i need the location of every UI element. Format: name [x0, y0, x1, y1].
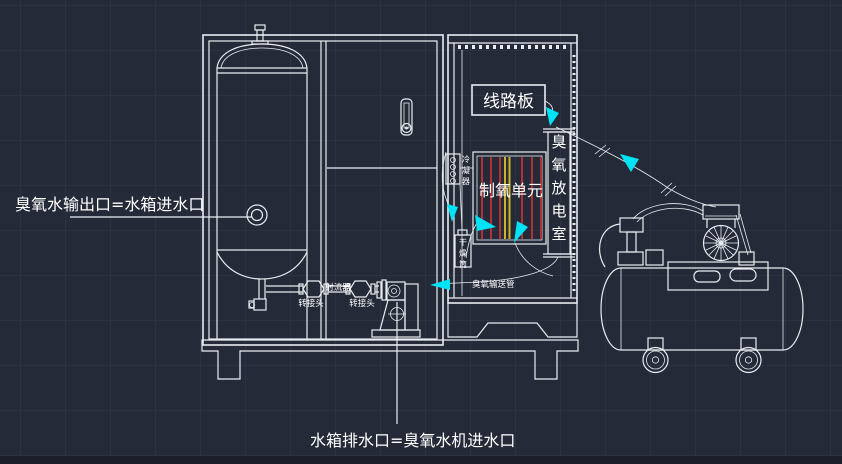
bottom-drain-label: 水箱排水口=臭氧水机进水口	[310, 431, 515, 450]
ozone-discharge-chamber: 臭 氧 放 电 室	[543, 129, 575, 257]
generator-bottom-skirt	[448, 303, 577, 337]
condenser-label: 冷凝器	[462, 154, 471, 188]
tank-inlet-port	[247, 205, 267, 225]
compressor-wheels	[643, 338, 761, 373]
water-pump[interactable]	[372, 280, 420, 337]
drying-cylinder: 干燥筒	[455, 230, 471, 271]
flow-arrow	[620, 154, 639, 172]
door-handle	[401, 99, 412, 135]
fan-spokes	[704, 226, 738, 260]
canvas-bottom-edge	[0, 456, 842, 464]
air-hose	[637, 208, 703, 222]
chamber-char: 室	[551, 225, 566, 243]
pump-housing	[387, 282, 405, 300]
air-supply-line[interactable]	[556, 127, 716, 207]
left-outlet-label: 臭氧水输出口=水箱进水口	[15, 195, 204, 214]
ozone-tube-label: 臭氧输送管	[472, 279, 515, 290]
water-tank-cabinet[interactable]	[203, 25, 443, 345]
tank-drain-pipe	[249, 279, 266, 310]
circuit-board-label: 线路板	[483, 92, 534, 112]
compressor-tank	[601, 268, 803, 350]
cad-model-canvas[interactable]: 射流器 转接头 转接头 线路板	[0, 0, 842, 464]
platform-slot	[730, 269, 756, 281]
chamber-char: 电	[551, 202, 566, 220]
chamber-char: 放	[551, 179, 566, 197]
chamber-char: 氧	[551, 156, 566, 174]
pump-pedestal	[380, 300, 405, 330]
water-pipeline[interactable]: 射流器 转接头 转接头	[266, 281, 379, 309]
adapter-left-label: 转接头	[298, 298, 324, 309]
compressor-motor	[703, 205, 754, 265]
pump-flange	[377, 282, 381, 298]
cabinet-inner-frame	[209, 41, 437, 339]
oxygen-unit-label: 制氧单元	[479, 181, 543, 200]
adapter-right-label: 转接头	[349, 298, 375, 309]
adapter-fitting-right	[350, 281, 371, 297]
pump-base	[372, 330, 420, 337]
flow-arrow	[475, 215, 496, 231]
equipment-drawing: 射流器 转接头 转接头 线路板	[0, 0, 842, 464]
condenser: 冷凝器	[446, 154, 473, 230]
internal-flow-leaders: 臭氧输送管	[430, 152, 558, 290]
injector-label: 射流器	[325, 282, 351, 293]
air-compressor[interactable]	[600, 204, 803, 373]
circuit-board: 线路板	[472, 85, 559, 126]
pump-flange	[382, 280, 386, 300]
platform-slot	[694, 271, 720, 282]
compressor-platform	[668, 262, 768, 290]
oxygen-unit-panel: 制氧单元	[473, 152, 546, 244]
annotation-bottom-drain: 水箱排水口=臭氧水机进水口	[310, 302, 515, 450]
flow-arrow	[430, 279, 450, 290]
skid-base[interactable]	[202, 340, 578, 379]
chamber-char: 臭	[551, 133, 566, 151]
ozone-generator-cabinet[interactable]: 线路板 臭 氧 放 电 室 冷凝器	[430, 35, 577, 337]
regulator-standpipe	[600, 204, 703, 267]
pump-motor-block	[405, 284, 418, 330]
